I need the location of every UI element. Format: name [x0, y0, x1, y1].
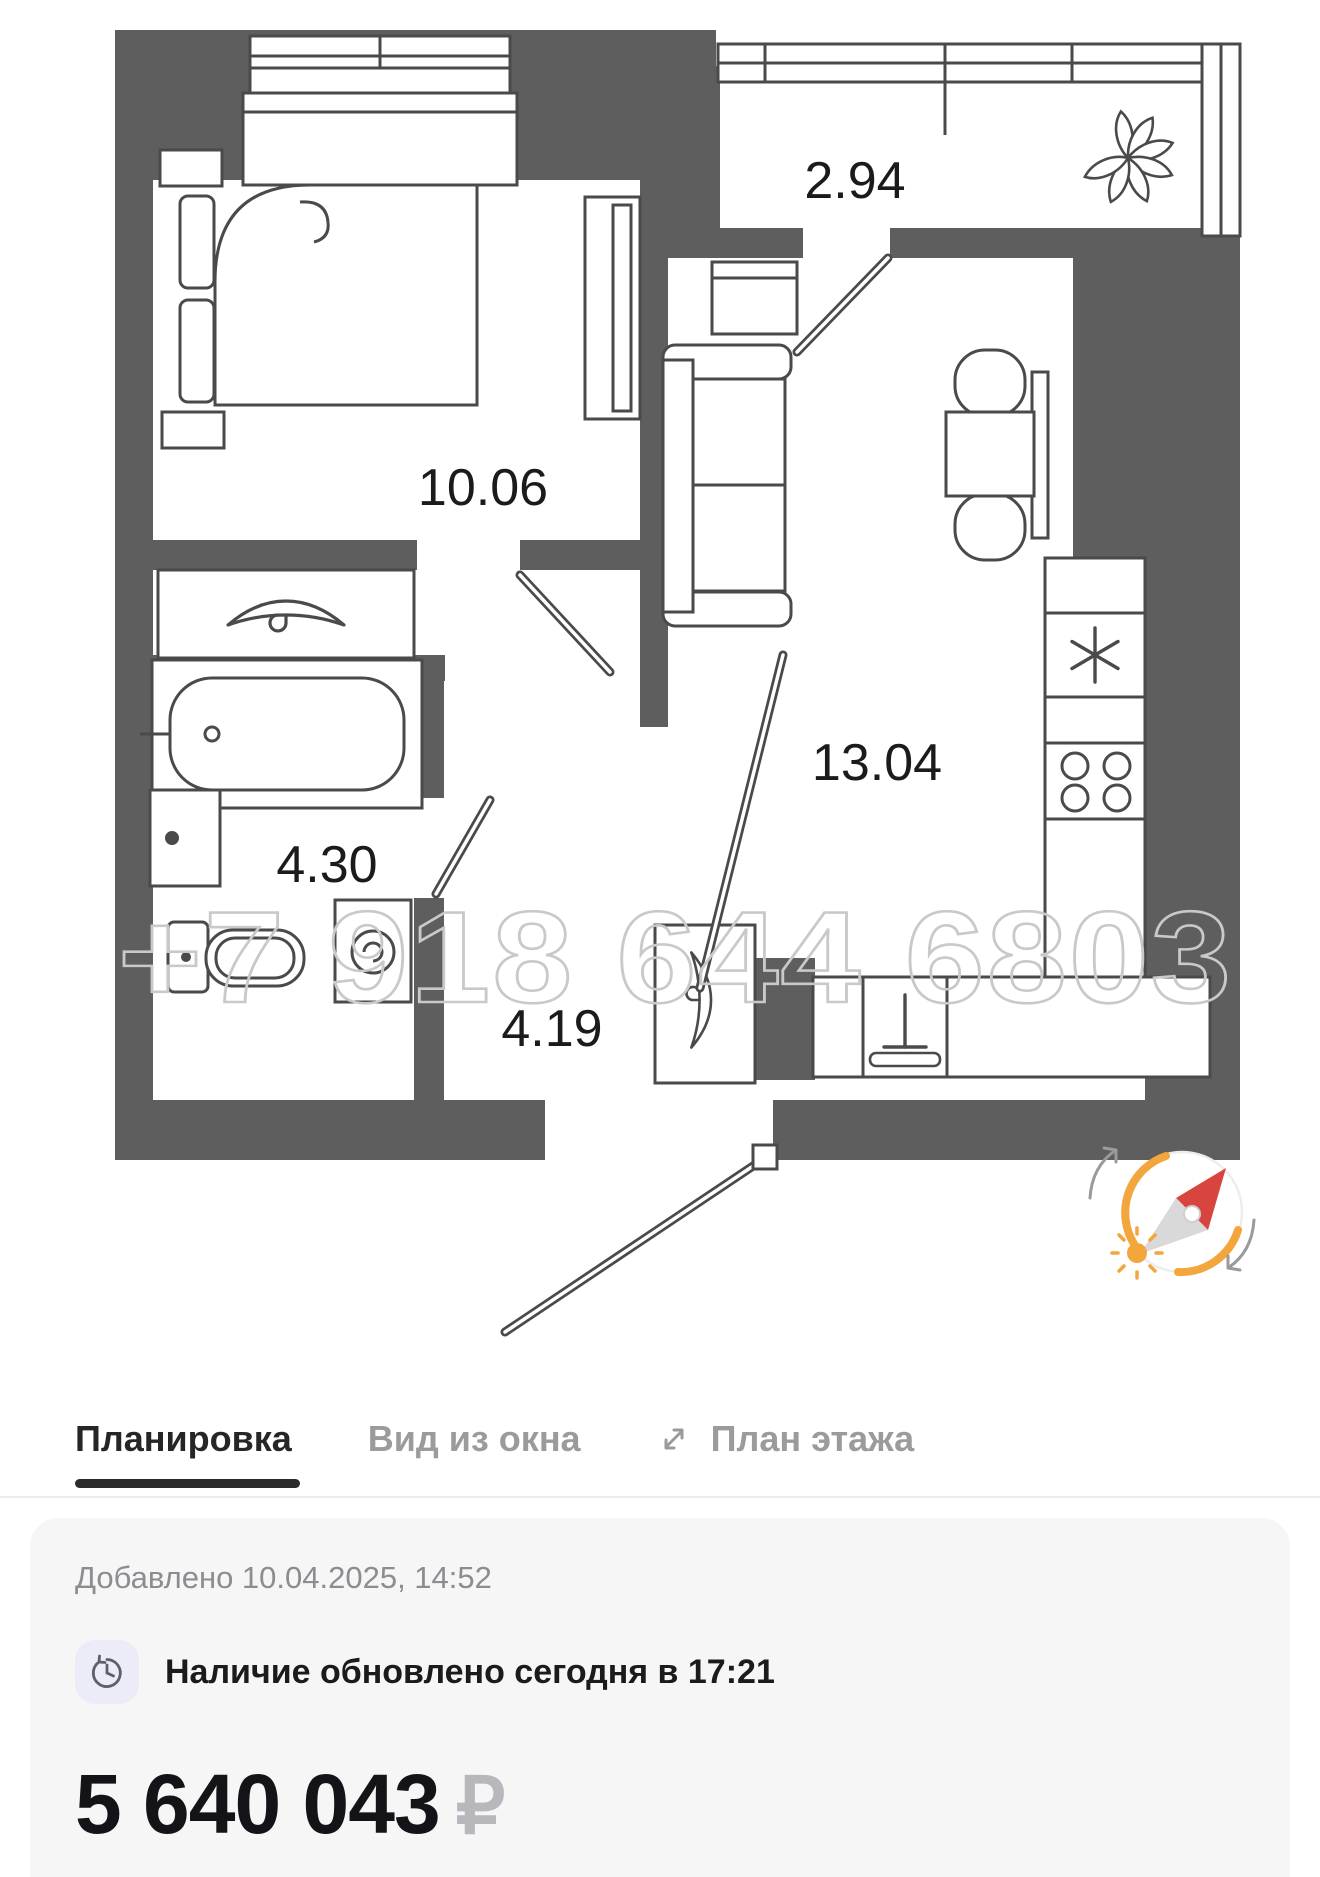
corridor-closet-icon	[158, 570, 414, 658]
bathtub-icon	[140, 660, 422, 808]
expand-icon	[657, 1422, 691, 1456]
price-value: 5 640 043	[75, 1756, 440, 1853]
room-label-hallway: 4.19	[501, 1000, 602, 1058]
bed-icon	[160, 150, 477, 448]
tab-window-view-label: Вид из окна	[368, 1418, 581, 1460]
price-card: Добавлено 10.04.2025, 14:52 Наличие обно…	[30, 1518, 1290, 1877]
wardrobe-icon	[585, 197, 640, 419]
bedroom-window-icon	[250, 36, 510, 94]
tab-window-view[interactable]: Вид из окна	[368, 1418, 581, 1460]
compass-icon	[1090, 1148, 1254, 1278]
sofa-icon	[663, 345, 791, 626]
tab-layout[interactable]: Планировка	[75, 1418, 292, 1460]
floor-plan: +7 918 644 6803 10.06 2.94 13.04 4.30 4.…	[0, 0, 1320, 1360]
tab-layout-label: Планировка	[75, 1418, 292, 1460]
sun-icon	[1112, 1228, 1162, 1278]
bath-sink-icon	[150, 790, 220, 886]
availability-row: Наличие обновлено сегодня в 17:21	[75, 1640, 1245, 1704]
listing-page: +7 918 644 6803 10.06 2.94 13.04 4.30 4.…	[0, 0, 1320, 1877]
tab-bar: Планировка Вид из окна План этажа	[0, 1360, 1320, 1498]
price-row: 5 640 043 ₽	[75, 1756, 1245, 1853]
watermark-phone: +7 918 644 6803	[118, 884, 1233, 1030]
room-label-living: 13.04	[812, 734, 942, 792]
update-clock-icon	[75, 1640, 139, 1704]
ruble-sign: ₽	[456, 1761, 506, 1852]
room-label-balcony: 2.94	[804, 152, 905, 210]
balcony-cabinet-icon	[712, 262, 797, 334]
dining-table-icon	[946, 350, 1048, 560]
active-tab-indicator	[75, 1479, 300, 1488]
tab-floor-plan-label: План этажа	[711, 1418, 915, 1460]
availability-text: Наличие обновлено сегодня в 17:21	[165, 1653, 775, 1692]
tab-floor-plan[interactable]: План этажа	[657, 1418, 915, 1460]
room-label-bedroom: 10.06	[418, 459, 548, 517]
added-date: Добавлено 10.04.2025, 14:52	[75, 1560, 1245, 1596]
plant-icon	[1082, 111, 1175, 205]
dresser-icon	[243, 93, 517, 185]
room-label-bathroom: 4.30	[276, 836, 377, 894]
